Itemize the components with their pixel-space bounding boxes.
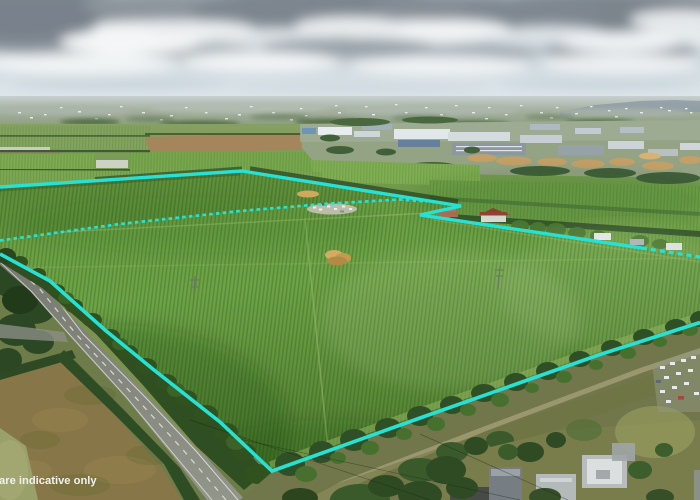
svg-text:are indicative only: are indicative only bbox=[0, 475, 97, 487]
